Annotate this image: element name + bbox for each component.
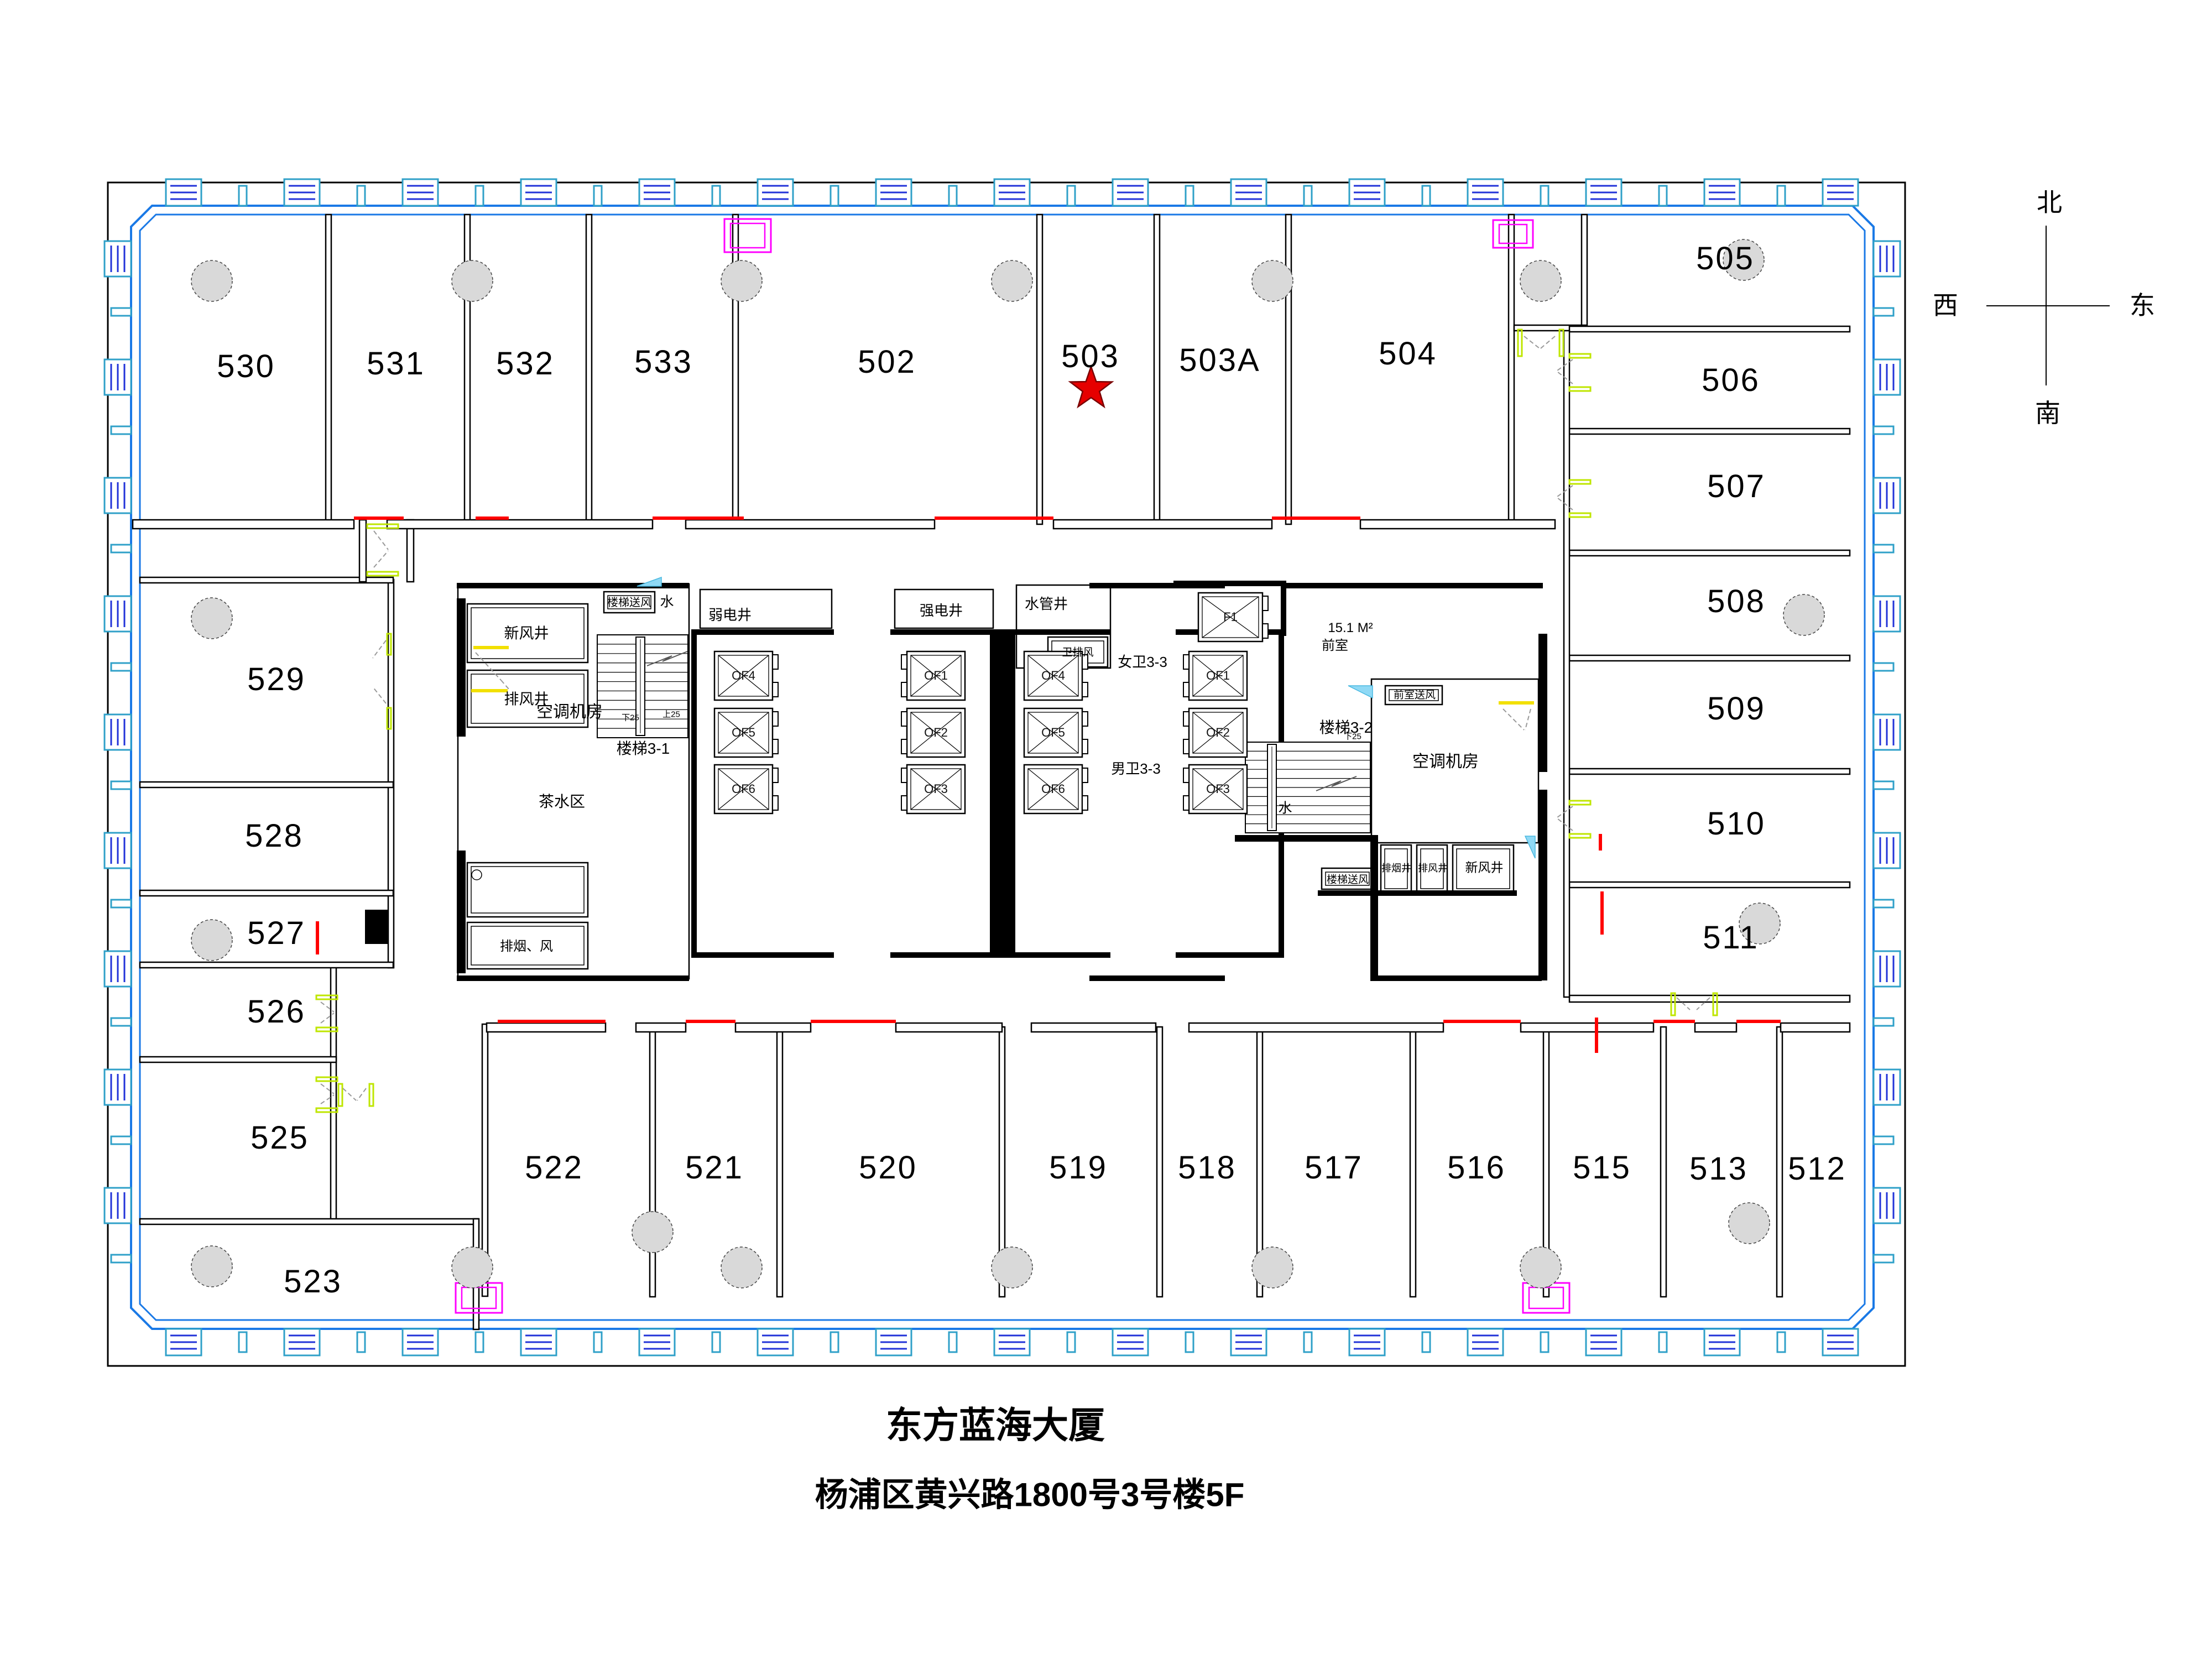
room-label-511: 511 xyxy=(1703,922,1759,954)
ac-room-left: 空调机房 xyxy=(536,704,603,721)
stair2-down-25: 下25 xyxy=(1344,733,1361,741)
room-label-517: 517 xyxy=(1305,1152,1363,1184)
room-label-521: 521 xyxy=(685,1152,744,1184)
room-label-515: 515 xyxy=(1573,1152,1631,1184)
elevator-car-label-OF6: OF6 xyxy=(732,783,755,795)
anteroom-supply: 前室送风 xyxy=(1394,690,1436,701)
fresh-air-shaft-right: 新风井 xyxy=(1465,862,1504,874)
room-label-512: 512 xyxy=(1788,1153,1846,1185)
room-label-525: 525 xyxy=(251,1122,309,1154)
room-label-504: 504 xyxy=(1379,338,1437,370)
room-label-506: 506 xyxy=(1702,364,1760,397)
elevator-car-label-OF1: OF1 xyxy=(1206,670,1230,682)
elevator-car-label-F1: F1 xyxy=(1223,611,1238,623)
room-label-518: 518 xyxy=(1178,1152,1237,1184)
strong-power-shaft: 强电井 xyxy=(920,603,963,618)
room-label-510: 510 xyxy=(1707,808,1766,840)
elevator-car-label-OF4: OF4 xyxy=(732,670,755,682)
smoke-shaft-right: 排烟井 xyxy=(1381,863,1411,873)
stairs xyxy=(597,635,1370,833)
elevator-car-label-OF5: OF5 xyxy=(1041,727,1065,739)
womens-toilet-3-3: 女卫3-3 xyxy=(1118,655,1167,669)
building-name: 东方蓝海大厦 xyxy=(886,1396,1105,1449)
elevator-car-label-OF3: OF3 xyxy=(1206,783,1230,795)
smoke-exhaust-left: 排烟、风 xyxy=(500,940,553,953)
elevator-car-label-OF6: OF6 xyxy=(1041,783,1065,795)
anteroom: 前室 xyxy=(1322,639,1348,653)
room-label-505: 505 xyxy=(1696,243,1755,275)
exhaust-shaft-right: 排风井 xyxy=(1418,863,1448,873)
room-label-519: 519 xyxy=(1049,1152,1108,1184)
room-label-530: 530 xyxy=(217,351,275,383)
room-label-522: 522 xyxy=(525,1152,583,1184)
weak-power-shaft: 弱电井 xyxy=(708,608,752,622)
room-label-503: 503 xyxy=(1061,341,1120,373)
floorplan-drawing xyxy=(0,0,2212,1659)
ac-room-right: 空调机房 xyxy=(1412,754,1479,770)
water-left: 水 xyxy=(660,596,674,609)
elevator-car-label-OF5: OF5 xyxy=(732,727,755,739)
anteroom-area: 15.1 M² xyxy=(1328,622,1373,635)
compass-east-label: 东 xyxy=(2130,293,2155,318)
elevator-car-label-OF2: OF2 xyxy=(924,727,948,739)
elevator-car-label-OF4: OF4 xyxy=(1041,670,1065,682)
compass-cross xyxy=(1986,226,2110,385)
room-label-508: 508 xyxy=(1707,586,1766,618)
room-label-507: 507 xyxy=(1707,471,1766,503)
mens-toilet-3-3: 男卫3-3 xyxy=(1111,761,1161,776)
compass-west-label: 西 xyxy=(1933,293,1958,318)
room-label-503A: 503A xyxy=(1179,345,1260,377)
water-right: 水 xyxy=(1278,802,1292,816)
elevator-car-label-OF3: OF3 xyxy=(924,783,948,795)
tea-area: 茶水区 xyxy=(539,794,585,810)
room-label-533: 533 xyxy=(634,346,693,378)
room-label-529: 529 xyxy=(247,664,306,696)
room-label-509: 509 xyxy=(1707,693,1766,725)
stair1-up-25: 上25 xyxy=(662,711,680,719)
elevator-car-label-OF2: OF2 xyxy=(1206,727,1230,739)
room-label-502: 502 xyxy=(858,346,916,378)
building-address: 杨浦区黄兴路1800号3号楼5F xyxy=(815,1468,1245,1516)
toilet-exhaust-shaft: 卫排风 xyxy=(1062,648,1093,658)
room-label-520: 520 xyxy=(859,1152,917,1184)
stair-3-1: 楼梯3-1 xyxy=(617,741,670,757)
room-label-526: 526 xyxy=(247,996,306,1028)
room-label-513: 513 xyxy=(1689,1153,1748,1185)
compass-north-label: 北 xyxy=(2037,190,2062,215)
stair-supply-left: 楼梯送风 xyxy=(607,597,651,608)
room-label-516: 516 xyxy=(1447,1152,1506,1184)
stair-supply-right: 楼梯送风 xyxy=(1327,875,1369,885)
water-pipe-shaft: 水管井 xyxy=(1025,597,1068,611)
room-label-531: 531 xyxy=(367,348,425,380)
stair1-down-25: 下25 xyxy=(622,714,639,722)
room-label-523: 523 xyxy=(284,1266,342,1298)
fresh-air-shaft-left: 新风井 xyxy=(504,627,549,641)
floorplan-canvas: 530531532533502503503A504505506507508509… xyxy=(0,0,2212,1659)
room-label-527: 527 xyxy=(247,917,306,950)
room-label-528: 528 xyxy=(245,820,304,852)
room-label-532: 532 xyxy=(496,348,555,380)
compass-south-label: 南 xyxy=(2035,400,2060,426)
elevator-car-label-OF1: OF1 xyxy=(924,670,948,682)
